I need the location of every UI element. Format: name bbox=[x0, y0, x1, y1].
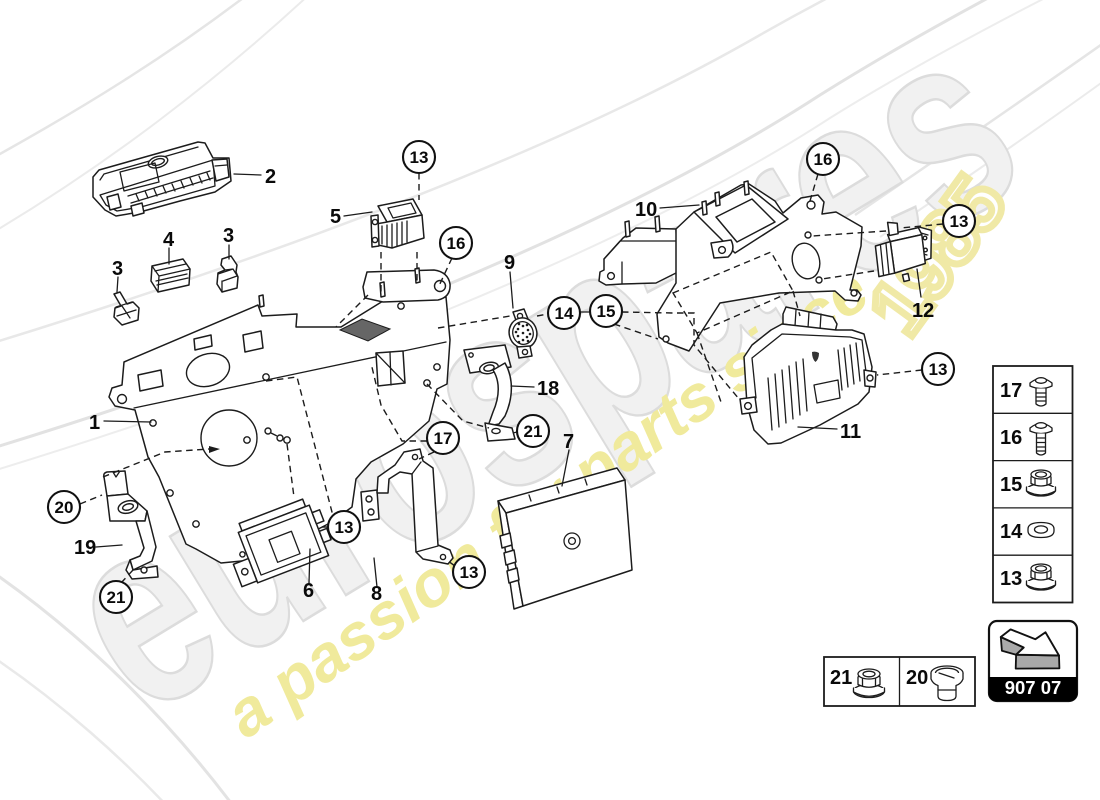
svg-text:21: 21 bbox=[107, 588, 126, 607]
svg-text:15: 15 bbox=[597, 302, 616, 321]
svg-text:6: 6 bbox=[303, 580, 314, 602]
svg-text:15: 15 bbox=[1000, 474, 1022, 496]
svg-text:13: 13 bbox=[410, 148, 429, 167]
svg-text:8: 8 bbox=[371, 583, 382, 605]
svg-text:907 07: 907 07 bbox=[1005, 677, 1062, 698]
svg-text:20: 20 bbox=[55, 498, 74, 517]
svg-text:13: 13 bbox=[950, 212, 969, 231]
svg-text:17: 17 bbox=[434, 429, 453, 448]
svg-text:9: 9 bbox=[504, 252, 515, 274]
svg-text:7: 7 bbox=[563, 431, 574, 453]
svg-text:13: 13 bbox=[335, 518, 354, 537]
svg-text:18: 18 bbox=[537, 378, 559, 400]
svg-text:13: 13 bbox=[1000, 568, 1022, 590]
svg-text:13: 13 bbox=[460, 563, 479, 582]
svg-text:14: 14 bbox=[555, 304, 574, 323]
svg-text:12: 12 bbox=[912, 300, 934, 322]
svg-text:11: 11 bbox=[840, 421, 861, 443]
svg-text:20: 20 bbox=[906, 667, 928, 689]
svg-text:19: 19 bbox=[74, 537, 96, 559]
svg-text:1: 1 bbox=[89, 412, 100, 434]
svg-text:17: 17 bbox=[1000, 380, 1022, 402]
svg-text:4: 4 bbox=[163, 229, 175, 251]
svg-text:3: 3 bbox=[112, 258, 123, 280]
svg-text:14: 14 bbox=[1000, 521, 1023, 543]
svg-text:13: 13 bbox=[929, 360, 948, 379]
svg-text:21: 21 bbox=[830, 667, 852, 689]
svg-text:16: 16 bbox=[814, 150, 833, 169]
svg-text:21: 21 bbox=[524, 422, 543, 441]
svg-text:16: 16 bbox=[447, 234, 466, 253]
svg-text:2: 2 bbox=[265, 166, 276, 188]
svg-text:10: 10 bbox=[635, 199, 657, 221]
svg-text:16: 16 bbox=[1000, 427, 1022, 449]
svg-text:5: 5 bbox=[330, 206, 341, 228]
svg-text:3: 3 bbox=[223, 225, 234, 247]
